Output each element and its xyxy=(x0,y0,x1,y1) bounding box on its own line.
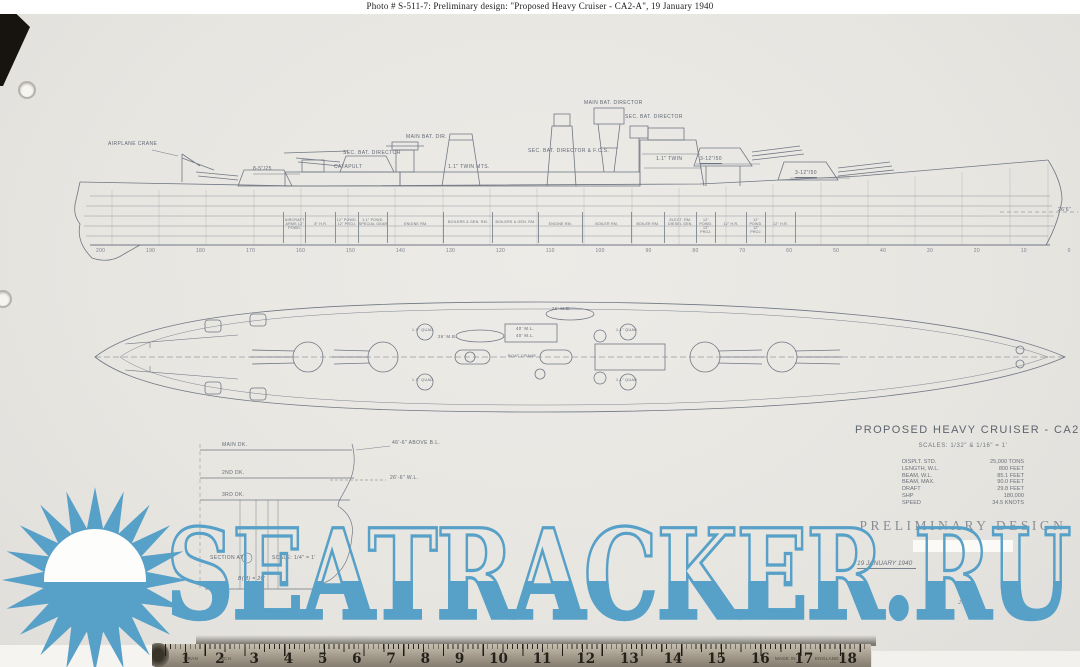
label-second-deck: 2ND DK. xyxy=(222,470,245,476)
label-motor-launch-1: 40' M.L. xyxy=(516,326,534,331)
label-beam-note: B(M) = 20' xyxy=(238,576,265,582)
spec-row: DRAFT29.8 FEET xyxy=(902,486,1024,493)
photo-caption: Photo # S-511-7: Preliminary design: "Pr… xyxy=(0,0,1080,14)
spec-row: BEAM, MAX.90.0 FEET xyxy=(902,479,1024,486)
spec-row: SHP180,000 xyxy=(902,493,1024,500)
label-section-caption: SECTION AT xyxy=(210,555,243,561)
drawing-scales: SCALES: 1/32" & 1/16" = 1' xyxy=(855,443,1071,449)
ruler-england-word: ENGLAND xyxy=(815,656,839,661)
compartment: ELECT. RM. DIESEL GEN. xyxy=(665,212,697,243)
hull-compartments: AIRCRAFT ARMS 12" POWD. 8" H.R. 12" POWD… xyxy=(283,212,796,243)
station-numbers: 200190 180170 160150 140130 120110 10090… xyxy=(96,248,1071,254)
spec-row: LENGTH, W.L.800 FEET xyxy=(902,466,1024,473)
compartment: BOILER RM. xyxy=(583,212,632,243)
scanned-photo-page: Photo # S-511-7: Preliminary design: "Pr… xyxy=(0,0,1080,667)
compartment: ENGINE RM. xyxy=(388,212,444,243)
drawing-title: PROPOSED HEAVY CRUISER - CA2-A xyxy=(855,424,1071,436)
label-sec-bat-director-aft: SEC. BAT. DIRECTOR xyxy=(343,150,401,156)
ruler-numbers: 12 34 56 78 910 1112 1314 1516 1718 xyxy=(155,651,871,667)
label-third-deck: 3RD DK. xyxy=(222,492,245,498)
spec-table: DISPLT. STD.25,000 TONS LENGTH, W.L.800 … xyxy=(902,459,1024,507)
erased-box xyxy=(913,540,1013,552)
label-catapult: CATAPULT xyxy=(334,164,362,170)
spec-row: DISPLT. STD.25,000 TONS xyxy=(902,459,1024,466)
label-quad-3: 1.1" QUAD xyxy=(616,328,637,332)
compartment: ENGINE RM. xyxy=(539,212,583,243)
body-section xyxy=(200,444,390,589)
label-motor-boat-2: 26' M.B. xyxy=(552,306,571,311)
compartment: BOILER RM. xyxy=(632,212,665,243)
preliminary-design-stamp: PRELIMINARY DESIGN xyxy=(855,518,1071,534)
measuring-ruler: 12 34 56 78 910 1112 1314 1516 1718 TIRA… xyxy=(155,644,871,667)
label-main-bat-dir-aft: MAIN BAT. DIR. xyxy=(406,134,447,140)
label-bow-waterline: 26'6" xyxy=(1058,207,1071,213)
compartment: 12" POWD. 12" PROJ. xyxy=(336,212,358,243)
label-secondary-battery: 8-5"/25 xyxy=(253,166,272,172)
label-main-battery-no2: 3-12"/50 xyxy=(700,156,722,164)
label-waterline-note: 26'-6" W.L. xyxy=(390,475,419,481)
compartment: BOILERS & GEN. RM. xyxy=(444,212,493,243)
label-sec-bat-director-fwd: SEC. BAT. DIRECTOR xyxy=(625,114,683,120)
label-motor-boat-1: 26' M.B. xyxy=(438,334,457,339)
label-twin-mount-fwd: 1.1" TWIN xyxy=(656,156,682,162)
label-quad-1: 1.1" QUAD xyxy=(412,328,433,332)
label-main-bat-director: MAIN BAT. DIRECTOR xyxy=(584,100,643,106)
drawing-date: 19 JANUARY 1940 xyxy=(857,560,916,569)
superstructure xyxy=(152,108,894,186)
label-sec-bat-director-fcs: SEC. BAT. DIRECTOR & F.C.S. xyxy=(528,148,609,154)
label-motor-launch-2: 40' M.L. xyxy=(516,333,534,338)
label-twin-mount-aft: 1.1" TWIN MTS. xyxy=(448,164,490,170)
compartment: AIRCRAFT ARMS 12" POWD. xyxy=(284,212,306,243)
compartment: 1.1" POWD. SPECIAL GEAR xyxy=(359,212,389,243)
compartment: 8" H.R. xyxy=(306,212,336,243)
ruler-inch-word: INCH xyxy=(219,656,231,661)
drafter-initials: J.J. xyxy=(958,600,967,606)
plan-view xyxy=(95,302,1065,412)
label-boat-crane: BOAT CRANE xyxy=(508,354,536,358)
compartment: 12" POWD. 12" PROJ. xyxy=(697,212,716,243)
paper-edge-right xyxy=(872,651,1080,667)
label-quad-4: 1.1" QUAD xyxy=(616,378,637,382)
compartment: BOILERS & GEN. RM. xyxy=(493,212,539,243)
blueprint-photo: AIRPLANE CRANE 8-5"/25 CATAPULT SEC. BAT… xyxy=(0,14,1080,667)
spec-row: BEAM, W.L.85.1 FEET xyxy=(902,473,1024,480)
label-main-battery-no1: 3-12"/50 xyxy=(795,170,817,178)
compartment: 12" H.R. xyxy=(766,212,796,243)
label-height-note: 46'-6" ABOVE B.L. xyxy=(392,440,440,446)
label-section-scale: SCALE: 1/4" = 1' xyxy=(272,555,316,561)
spec-row: SPEED34.5 KNOTS xyxy=(902,500,1024,507)
ruler-made-in-word: MADE IN xyxy=(775,656,796,661)
label-airplane-crane: AIRPLANE CRANE xyxy=(108,141,157,147)
paper-edge-left xyxy=(0,645,156,667)
title-block: PROPOSED HEAVY CRUISER - CA2-A SCALES: 1… xyxy=(855,424,1071,570)
compartment: 12" POWD. 12" PROJ. xyxy=(747,212,766,243)
label-main-deck: MAIN DK. xyxy=(222,442,247,448)
ruler-brand-word: TIRAN xyxy=(183,656,198,661)
compartment: 12" H.R. xyxy=(716,212,747,243)
label-quad-2: 1.1" QUAD xyxy=(412,378,433,382)
